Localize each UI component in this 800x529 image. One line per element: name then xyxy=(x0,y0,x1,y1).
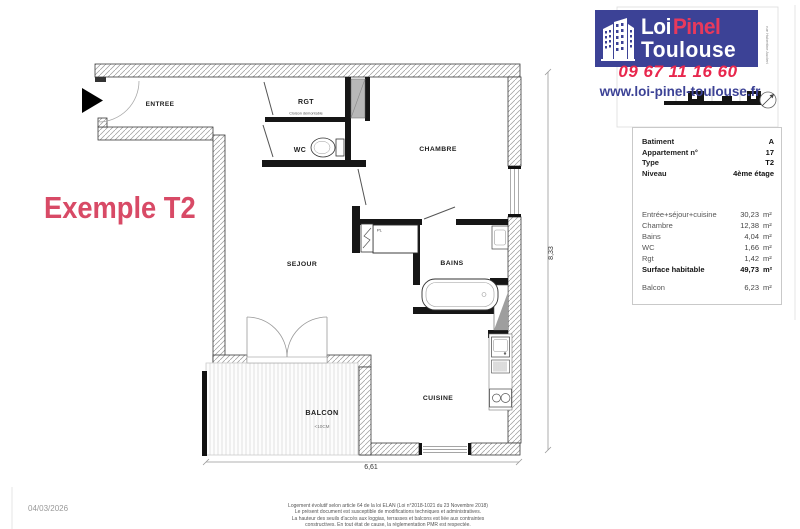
brand-logo-text: LoiPinel Toulouse xyxy=(641,16,736,61)
chambre-window xyxy=(508,166,521,217)
room-label-bains: BAINS xyxy=(440,260,463,267)
area-row-sejour: Entrée+séjour+cuisine 30,23 m² xyxy=(642,210,774,221)
bathtub-icon xyxy=(422,279,498,310)
room-label-wc: WC xyxy=(294,147,306,154)
area-row-bains: Bains 4,04 m² xyxy=(642,232,774,243)
area-row-chambre: Chambre 12,38 m² xyxy=(642,221,774,232)
area-row-surface-habitable: Surface habitable 49,73 m² xyxy=(642,265,774,276)
plan-date: 04/03/2026 xyxy=(28,504,68,513)
apartment-areas: Entrée+séjour+cuisine 30,23 m² Chambre 1… xyxy=(642,210,774,294)
field-type: Type T2 xyxy=(642,158,774,169)
logo-word-toulouse: Toulouse xyxy=(641,39,736,61)
entry-door-arc xyxy=(98,81,139,122)
plan-watermark-title: Exemple T2 xyxy=(44,190,196,226)
field-niveau: Niveau 4ème étage xyxy=(642,169,774,180)
brand-logo: LoiPinel Toulouse xyxy=(595,10,758,67)
french-doors xyxy=(247,317,327,357)
apartment-fields: Batiment A Appartement n° 17 Type T2 Niv… xyxy=(642,137,774,179)
room-label-sejour: SEJOUR xyxy=(287,261,317,268)
website-link[interactable]: www.loi-pinel-toulouse.fr xyxy=(586,84,774,99)
room-label-rgt: RGT xyxy=(298,99,314,106)
logo-word-pinel: Pinel xyxy=(673,14,721,39)
room-label-entree: ENTREE xyxy=(146,101,175,108)
room-label-chambre: CHAMBRE xyxy=(419,146,457,153)
toilet-icon xyxy=(311,138,344,157)
annotation-cloison: Cloison démontable xyxy=(289,112,323,116)
entry-arrow-icon xyxy=(82,88,103,113)
dimension-height-label: 8,33 xyxy=(548,246,555,260)
plan-sheet: N rue Hubertine Auclert xyxy=(0,0,800,529)
cuisine-window xyxy=(419,443,471,455)
annotation-balcon-note: <10CM xyxy=(315,424,330,429)
cooktop-icon xyxy=(490,389,512,407)
logo-word-loi: Loi xyxy=(641,14,671,39)
field-appartement: Appartement n° 17 xyxy=(642,148,774,159)
room-label-cuisine: CUISINE xyxy=(423,395,453,402)
dimension-width-label: 6,61 xyxy=(364,464,378,471)
annotation-pl: PL xyxy=(377,228,383,233)
field-batiment: Batiment A xyxy=(642,137,774,148)
room-label-balcon: BALCON xyxy=(305,408,338,417)
kitchen-counter xyxy=(489,334,512,410)
street-name-label: rue Hubertine Auclert xyxy=(765,26,770,64)
legal-notice: Logement évolutif selon article 64 de la… xyxy=(188,503,588,529)
area-row-rgt: Rgt 1,42 m² xyxy=(642,254,774,265)
dishwasher-icon xyxy=(492,360,510,373)
closet-pl xyxy=(361,224,418,253)
area-row-wc: WC 1,66 m² xyxy=(642,243,774,254)
bath-sink-icon xyxy=(492,226,508,249)
area-row-balcon: Balcon 6,23 m² xyxy=(642,283,774,294)
phone-number: 09 67 11 16 60 xyxy=(593,62,763,82)
buildings-icon xyxy=(600,16,636,62)
legal-line-4: constructives. En tout état de cause, la… xyxy=(188,522,588,528)
apartment-info-panel: Batiment A Appartement n° 17 Type T2 Niv… xyxy=(632,127,782,305)
kitchen-sink-icon xyxy=(492,337,510,357)
entry-door-jamb xyxy=(95,77,106,82)
balcony-deck xyxy=(202,357,358,456)
